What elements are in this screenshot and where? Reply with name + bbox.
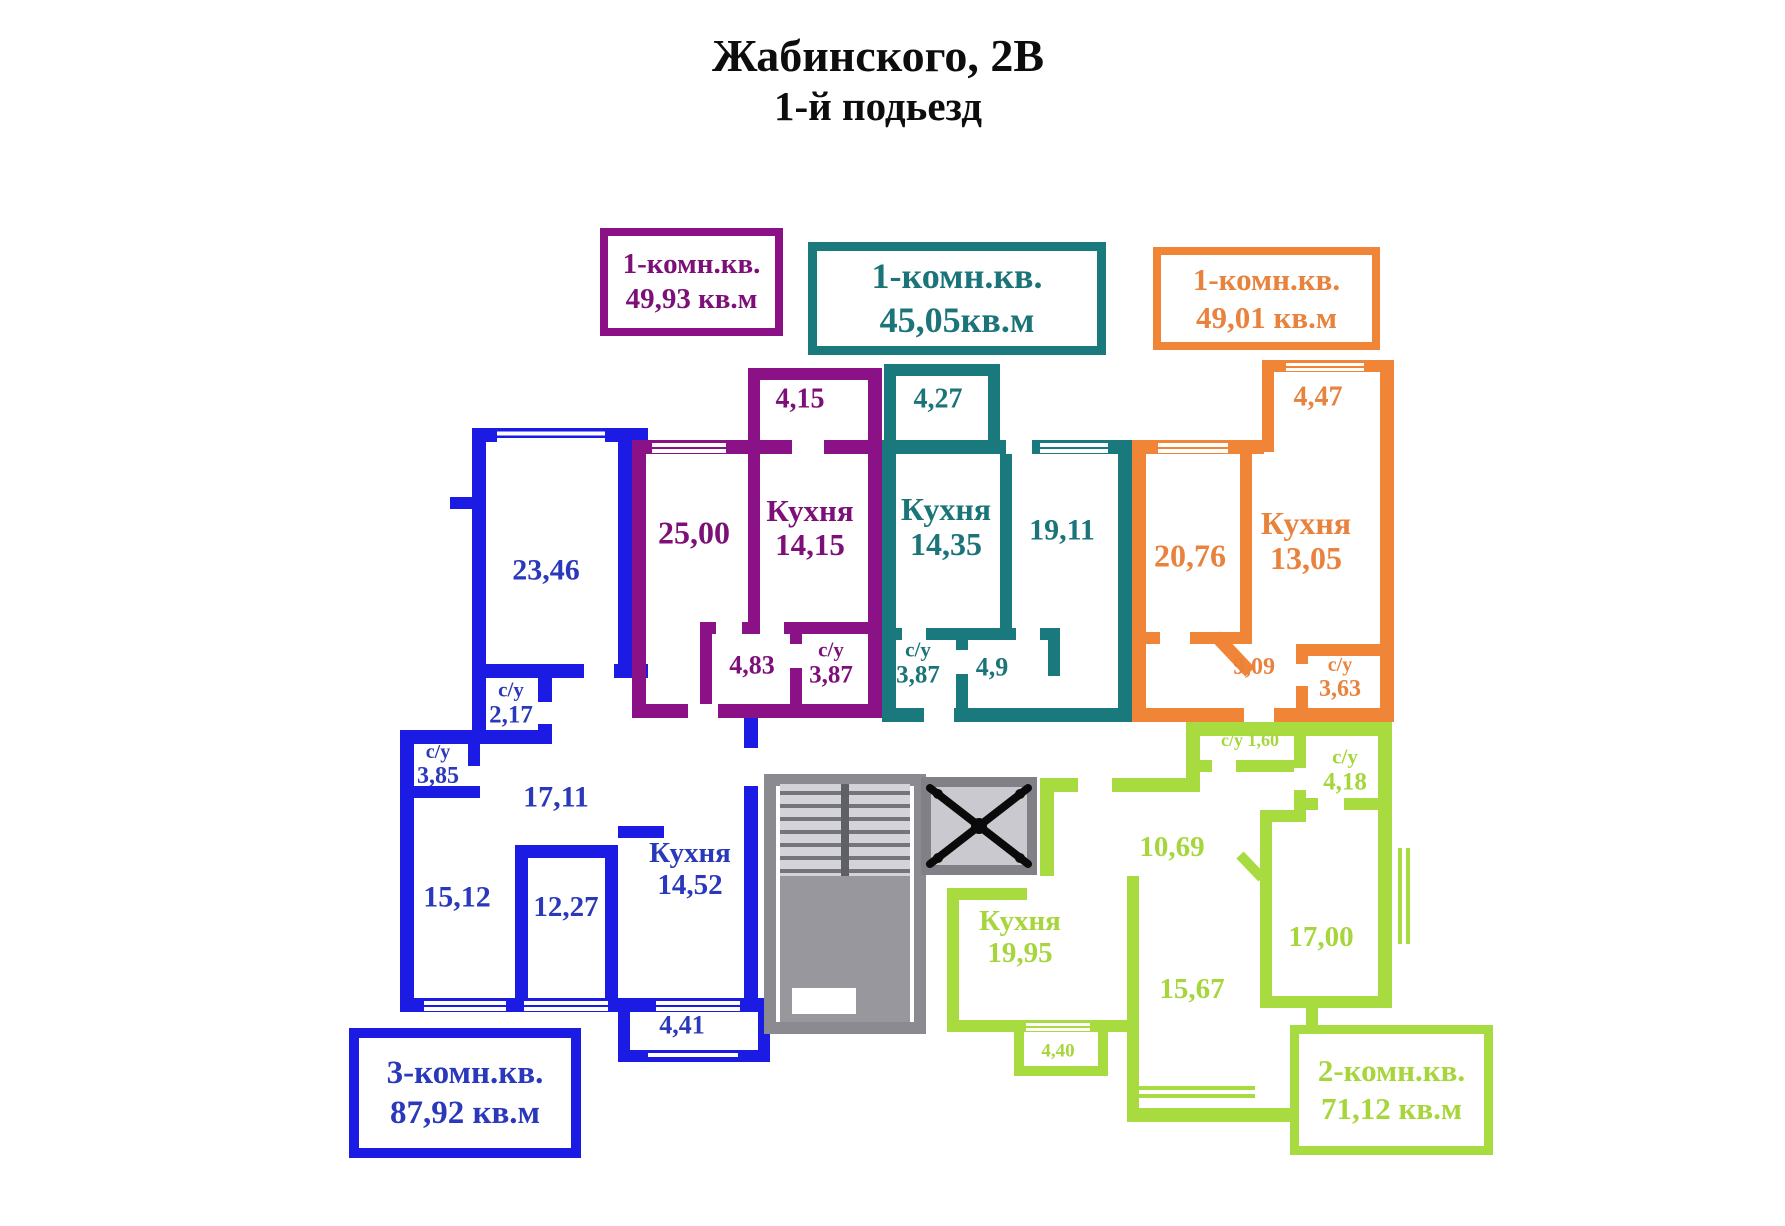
- room-label-blue-bedroom1: 15,12: [423, 881, 491, 914]
- room-label-blue-bedroom2: 12,27: [533, 892, 598, 924]
- legend-orange-area: 49,01 кв.м: [1196, 299, 1337, 337]
- room-label-green-living: 15,67: [1159, 974, 1224, 1006]
- room-label-purple-wc: с/у 3,87: [809, 639, 853, 690]
- room-label-blue-living: 23,46: [512, 554, 580, 587]
- room-label-purple-balcony: 4,15: [776, 385, 825, 416]
- room-label-orange-balcony: 4,47: [1294, 383, 1343, 414]
- title-line-address: Жабинского, 2В: [578, 30, 1178, 83]
- room-label-purple-kitchen: Кухня 14,15: [766, 494, 853, 562]
- legend-green-area: 71,12 кв.м: [1321, 1090, 1462, 1128]
- room-label-blue-hall: 17,11: [523, 781, 589, 814]
- room-label-green-kitchen: Кухня 19,95: [979, 906, 1061, 970]
- room-label-purple-living: 25,00: [658, 515, 730, 550]
- room-label-orange-hall: 9,09: [1233, 654, 1275, 680]
- legend-purple-apartment: 1-комн.кв. 49,93 кв.м: [600, 228, 783, 336]
- page-title: Жабинского, 2В 1-й подьезд: [578, 30, 1178, 130]
- elevator-shaft: [926, 782, 1032, 870]
- room-label-blue-balcony: 4,41: [659, 1012, 705, 1041]
- room-label-teal-balcony: 4,27: [914, 385, 963, 416]
- room-label-blue-wc1: с/у 2,17: [489, 679, 533, 730]
- title-line-entrance: 1-й подьезд: [578, 83, 1178, 130]
- legend-blue-apartment: 3-комн.кв. 87,92 кв.м: [349, 1028, 581, 1158]
- legend-blue-type: 3-комн.кв.: [387, 1053, 544, 1093]
- legend-green-apartment: 2-комн.кв. 71,12 кв.м: [1290, 1025, 1493, 1155]
- room-label-teal-wc: с/у 3,87: [896, 639, 940, 690]
- floor-plan-drawing: [0, 0, 1785, 1226]
- room-label-teal-living: 19,11: [1029, 514, 1095, 547]
- room-label-purple-hall: 4,83: [729, 652, 775, 681]
- room-label-green-hall: 10,69: [1139, 832, 1204, 864]
- legend-blue-area: 87,92 кв.м: [390, 1093, 540, 1133]
- legend-teal-area: 45,05кв.м: [880, 299, 1035, 343]
- legend-orange-apartment: 1-комн.кв. 49,01 кв.м: [1153, 247, 1380, 350]
- room-label-teal-kitchen: Кухня 14,35: [901, 492, 991, 562]
- room-label-green-wc1: с/у 1,60: [1221, 731, 1279, 751]
- room-label-green-bedroom: 17,00: [1288, 922, 1353, 954]
- legend-orange-type: 1-комн.кв.: [1193, 261, 1340, 299]
- floor-plan-page: Жабинского, 2В 1-й подьезд 1-комн.кв. 49…: [0, 0, 1785, 1226]
- room-label-orange-wc: с/у 3,63: [1319, 654, 1361, 702]
- room-label-green-wc2: с/у 4,18: [1323, 746, 1367, 797]
- room-label-blue-wc2: с/у 3,85: [417, 741, 459, 789]
- room-label-green-balcony: 4,40: [1041, 1042, 1074, 1063]
- room-label-orange-kitchen: Кухня 13,05: [1261, 506, 1351, 576]
- legend-teal-type: 1-комн.кв.: [871, 255, 1042, 299]
- legend-teal-apartment: 1-комн.кв. 45,05кв.м: [808, 242, 1106, 355]
- room-label-teal-hall: 4,9: [976, 654, 1009, 683]
- legend-purple-type: 1-комн.кв.: [623, 247, 761, 282]
- room-label-orange-living: 20,76: [1154, 538, 1226, 573]
- stairwell: [770, 780, 920, 1028]
- room-label-blue-kitchen: Кухня 14,52: [649, 838, 731, 902]
- legend-green-type: 2-комн.кв.: [1318, 1052, 1465, 1090]
- legend-purple-area: 49,93 кв.м: [626, 282, 758, 317]
